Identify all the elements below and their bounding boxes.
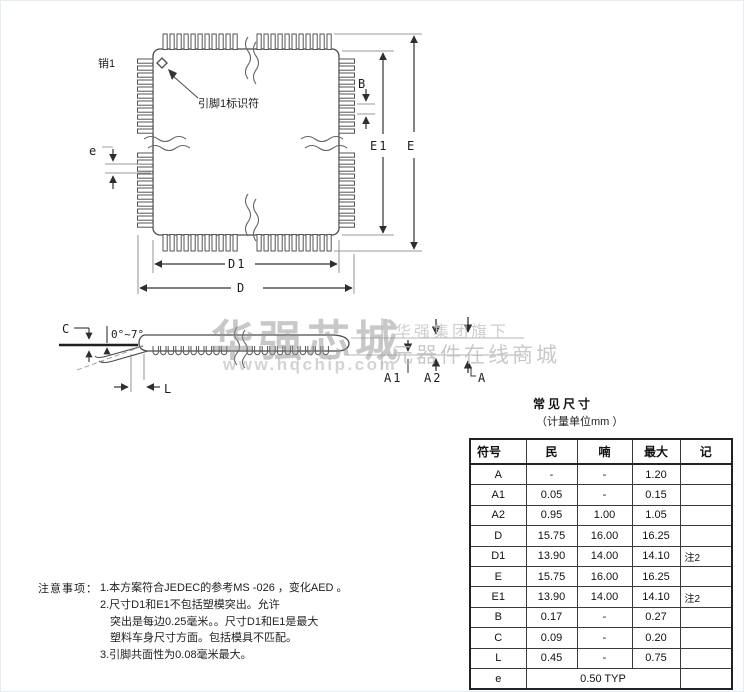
chip-pin	[191, 34, 195, 50]
table-cell: 13.90	[526, 546, 577, 566]
table-column-header: 民	[526, 439, 577, 464]
chip-pin	[264, 34, 268, 50]
top-view-drawing: 销1 引脚1标识符 e B E1 E D1 D	[89, 34, 422, 295]
chip-pin	[233, 235, 237, 252]
chip-pin	[285, 34, 289, 50]
pin1-label: 销1	[98, 56, 115, 70]
dim-label-A: A	[478, 371, 486, 385]
dim-label-A2: A2	[424, 371, 442, 385]
table-column-header: 最大	[632, 439, 680, 464]
chip-pin	[306, 235, 310, 252]
table-cell	[680, 566, 732, 586]
table-row: L0.45-0.75	[470, 648, 732, 668]
table-cell: 0.27	[632, 607, 680, 627]
chip-pin	[339, 87, 355, 91]
chip-pin	[138, 202, 154, 206]
table-cell: 1.05	[632, 505, 680, 525]
chip-pin	[184, 235, 188, 252]
chip-pin	[339, 101, 355, 105]
chip-pin	[138, 174, 154, 178]
package-drawing-page: 销1 引脚1标识符 e B E1 E D1 D	[0, 0, 744, 692]
chip-pin	[339, 122, 355, 126]
chip-pin	[138, 129, 154, 133]
note-line: 3.引脚共面性为0.08毫米最大。	[100, 647, 348, 664]
table-cell: -	[577, 464, 632, 485]
table-column-header: 喃	[577, 439, 632, 464]
table-cell: 15.75	[526, 526, 577, 546]
dimension-L	[114, 354, 160, 392]
table-row: e0.50 TYP	[470, 668, 732, 689]
dim-label-C: C	[62, 322, 69, 336]
chip-pin	[198, 235, 202, 252]
table-cell: 0.75	[632, 648, 680, 668]
chip-pin	[198, 34, 202, 50]
table-cell: A1	[470, 485, 526, 505]
chip-pin	[163, 235, 167, 252]
chip-pin	[339, 59, 355, 63]
chip-pin	[138, 87, 154, 91]
table-subtitle: （计量单位mm ）	[536, 413, 623, 429]
chip-pin	[264, 235, 268, 252]
table-row: E15.7516.0016.25	[470, 566, 732, 586]
table-cell: 0.15	[632, 485, 680, 505]
table-cell	[680, 648, 732, 668]
chip-pin	[191, 235, 195, 252]
chip-pin	[339, 181, 355, 185]
watermark-mall-line: 元器件在线商城	[392, 339, 560, 369]
chip-pin	[170, 34, 174, 50]
table-cell	[680, 607, 732, 627]
chip-pin	[205, 235, 209, 252]
chip-pin	[339, 223, 355, 227]
chip-pin	[339, 129, 355, 133]
dim-label-B: B	[358, 77, 365, 91]
table-cell: B	[470, 607, 526, 627]
chip-pin	[163, 34, 167, 50]
chip-pin	[339, 153, 355, 157]
table-cell: 16.25	[632, 566, 680, 586]
table-cell	[680, 464, 732, 485]
table-cell: L	[470, 648, 526, 668]
chip-pin	[138, 209, 154, 213]
table-cell: -	[577, 648, 632, 668]
watermark-url: www.hqchip.com	[223, 355, 397, 375]
chip-pin	[292, 235, 296, 252]
chip-pin	[138, 181, 154, 185]
pin1-identifier-label: 引脚1标识符	[198, 96, 259, 110]
chip-pin	[320, 34, 324, 50]
chip-pin	[170, 235, 174, 252]
dimension-B	[357, 89, 375, 129]
table-row: D15.7516.0016.25	[470, 526, 732, 546]
table-cell	[680, 505, 732, 525]
chip-pin	[339, 108, 355, 112]
table-cell: E	[470, 566, 526, 586]
table-row: A10.05-0.15	[470, 485, 732, 505]
angle-reference-line	[77, 346, 143, 370]
table-cell: D	[470, 526, 526, 546]
chip-pin	[339, 209, 355, 213]
chip-pin	[138, 101, 154, 105]
table-cell: C	[470, 628, 526, 648]
chip-pin	[339, 66, 355, 70]
table-cell: 16.00	[577, 566, 632, 586]
table-cell	[680, 628, 732, 648]
table-cell: E1	[470, 587, 526, 607]
table-cell: 1.20	[632, 464, 680, 485]
table-cell: 0.09	[526, 628, 577, 648]
table-cell: -	[526, 464, 577, 485]
chip-pin	[278, 34, 282, 50]
chip-pin	[278, 235, 282, 252]
chip-pin	[205, 34, 209, 50]
chip-pin	[138, 94, 154, 98]
table-row: A--1.20	[470, 464, 732, 485]
chip-pin	[299, 34, 303, 50]
chip-pin	[138, 59, 154, 63]
chip-body	[153, 49, 339, 235]
chip-pin	[138, 66, 154, 70]
dim-label-E1: E1	[370, 139, 388, 153]
chip-pin	[313, 34, 317, 50]
table-cell: 0.45	[526, 648, 577, 668]
dim-label-e: e	[89, 144, 96, 158]
table-cell: 16.25	[632, 526, 680, 546]
table-row: D113.9014.0014.10注2	[470, 546, 732, 566]
table-cell: 13.90	[526, 587, 577, 607]
watermark-divider	[381, 318, 383, 369]
dim-label-E: E	[407, 139, 414, 153]
table-cell: 注2	[680, 546, 732, 566]
chip-pin	[339, 202, 355, 206]
chip-pin	[219, 235, 223, 252]
note-line: 2.尺寸D1和E1不包括塑模突出。允许	[100, 597, 348, 614]
table-cell: 注2	[680, 587, 732, 607]
chip-pin	[257, 235, 261, 252]
chip-pin	[327, 235, 331, 252]
table-column-header: 符号	[470, 439, 526, 464]
chip-pin	[339, 160, 355, 164]
table-cell: 14.10	[632, 587, 680, 607]
table-cell: e	[470, 668, 526, 689]
chip-pin	[339, 195, 355, 199]
table-cell: A	[470, 464, 526, 485]
chip-pin	[306, 34, 310, 50]
chip-pin	[138, 73, 154, 77]
note-line: 突出是每边0.25毫米。。尺寸D1和E1是最大	[100, 614, 348, 631]
chip-pin	[233, 34, 237, 50]
table-row: C0.09-0.20	[470, 628, 732, 648]
chip-pin	[226, 34, 230, 50]
table-cell: 16.00	[577, 526, 632, 546]
dim-label-D: D	[237, 281, 244, 295]
table-cell: D1	[470, 546, 526, 566]
table-cell: -	[577, 628, 632, 648]
table-column-header: 记	[680, 439, 732, 464]
table-cell	[680, 526, 732, 546]
chip-pin	[327, 34, 331, 50]
dim-label-D1: D1	[228, 257, 246, 271]
chip-pin	[339, 188, 355, 192]
chip-pin	[212, 34, 216, 50]
table-cell: 0.17	[526, 607, 577, 627]
chip-pin	[285, 235, 289, 252]
chip-pin	[292, 34, 296, 50]
notes-label: 注意事项：	[38, 580, 98, 596]
chip-pin	[177, 34, 181, 50]
table-cell: 15.75	[526, 566, 577, 586]
chip-pin	[339, 216, 355, 220]
chip-pin	[138, 115, 154, 119]
table-header-row: 符号民喃最大记	[470, 439, 732, 464]
chip-pin	[339, 167, 355, 171]
table-cell: 14.00	[577, 546, 632, 566]
dim-label-L: L	[164, 382, 171, 396]
chip-pin	[257, 34, 261, 50]
angle-label: 0°~7°	[111, 328, 144, 341]
chip-pin	[177, 235, 181, 252]
chip-pin	[226, 235, 230, 252]
chip-pin	[339, 115, 355, 119]
chip-pin	[313, 235, 317, 252]
note-line: 塑料车身尺寸方面。包括模具不匹配。	[100, 630, 348, 647]
chip-pin	[271, 235, 275, 252]
chip-pin	[212, 235, 216, 252]
chip-pin	[138, 216, 154, 220]
table-cell: 14.00	[577, 587, 632, 607]
chip-pin	[339, 80, 355, 84]
chip-pin	[138, 223, 154, 227]
table-cell: 1.00	[577, 505, 632, 525]
table-cell: -	[577, 607, 632, 627]
chip-pin	[138, 80, 154, 84]
notes-section: 1.本方案符合JEDEC的参考MS -026 ，变化AED 。2.尺寸D1和E1…	[100, 580, 348, 664]
chip-pin	[138, 167, 154, 171]
table-row: E113.9014.0014.10注2	[470, 587, 732, 607]
note-line: 1.本方案符合JEDEC的参考MS -026 ，变化AED 。	[100, 580, 348, 597]
table-cell: 14.10	[632, 546, 680, 566]
table-cell: 0.95	[526, 505, 577, 525]
table-row: B0.17-0.27	[470, 607, 732, 627]
side-left-lead	[59, 345, 148, 370]
chip-pin	[299, 235, 303, 252]
chip-pin	[339, 73, 355, 77]
chip-pin	[271, 34, 275, 50]
chip-pin	[138, 122, 154, 126]
table-row: A20.951.001.05	[470, 505, 732, 525]
chip-pin	[184, 34, 188, 50]
dimensions-table: 符号民喃最大记 A--1.20A10.05-0.15A20.951.001.05…	[469, 438, 733, 690]
table-cell: 0.50 TYP	[526, 668, 680, 689]
table-cell: A2	[470, 505, 526, 525]
chip-pin	[138, 188, 154, 192]
table-cell	[680, 668, 732, 689]
table-cell: 0.05	[526, 485, 577, 505]
table-cell	[680, 485, 732, 505]
chip-pin	[138, 153, 154, 157]
table-title: 常见尺寸	[533, 395, 593, 412]
chip-pin	[138, 108, 154, 112]
chip-pin	[219, 34, 223, 50]
chip-pin	[339, 174, 355, 178]
table-cell: 0.20	[632, 628, 680, 648]
chip-pin	[138, 195, 154, 199]
chip-pin	[320, 235, 324, 252]
table-cell: -	[577, 485, 632, 505]
chip-pin	[339, 94, 355, 98]
